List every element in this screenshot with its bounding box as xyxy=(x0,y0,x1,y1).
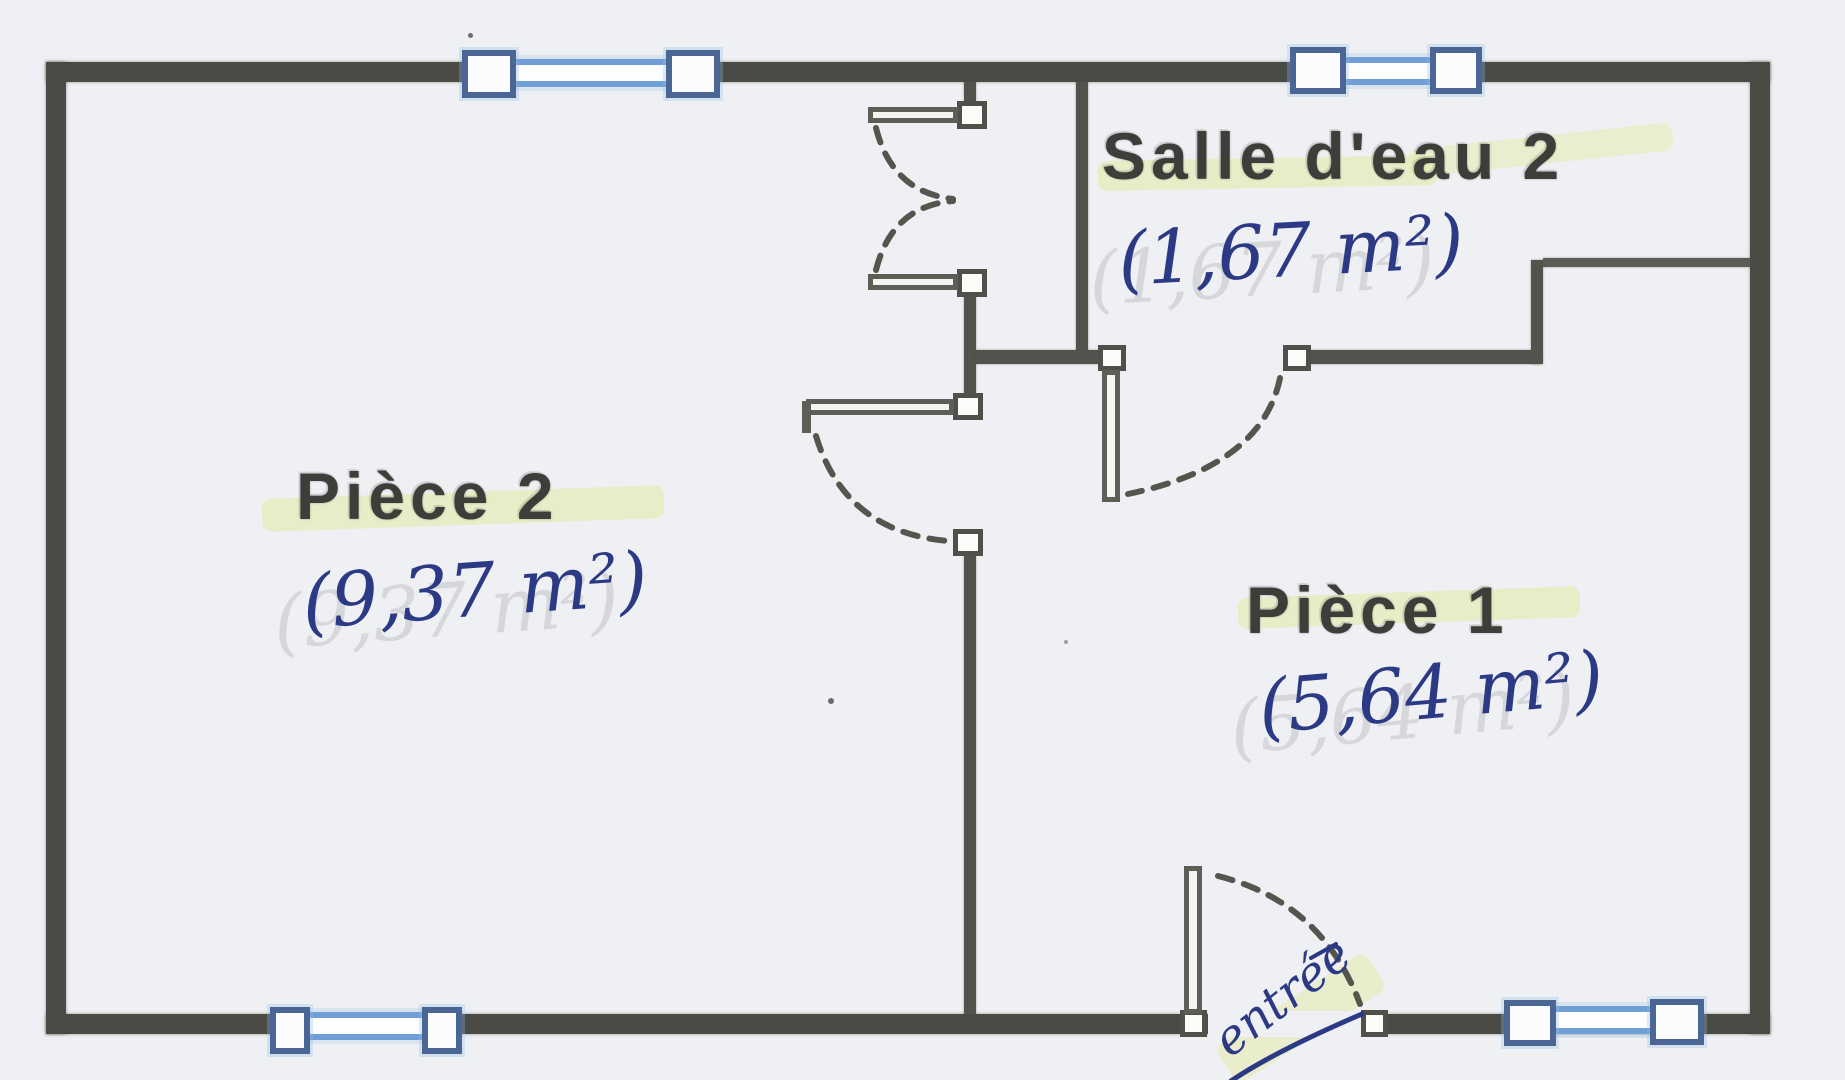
room-area-piece-1: (5,64 m²) xyxy=(1255,635,1607,751)
window-top-right-frame-a xyxy=(1290,47,1346,94)
closet-door-jamb-top xyxy=(957,101,987,129)
salle-d-eau-door-jamb-right xyxy=(1283,345,1311,371)
door-swing-overlay xyxy=(0,0,1845,1080)
closet-door-jamb-bottom xyxy=(957,269,987,297)
scan-speck xyxy=(1064,640,1068,644)
room-label-piece-2: Pièce 2 xyxy=(296,458,559,534)
scan-speck xyxy=(828,698,834,704)
closet-door-swing-arc-bottom xyxy=(876,201,953,270)
outer-wall-right xyxy=(1750,62,1770,1034)
floor-plan: Salle d'eau 2 Pièce 2 Pièce 1 (1,67 m²) … xyxy=(0,0,1845,1080)
salle-d-eau-wall-step xyxy=(1531,260,1543,364)
divider-wall-piece2-piece1 xyxy=(964,553,976,1014)
room-area-piece-2: (9,37 m²) xyxy=(299,536,650,646)
room-label-salle-d-eau-2: Salle d'eau 2 xyxy=(1102,118,1564,194)
salle-d-eau-door-swing-arc xyxy=(1128,378,1280,494)
closet-wall-bottom xyxy=(976,350,1104,364)
closet-door-swing-arc-top xyxy=(876,128,953,199)
doorway-jamb-bottom xyxy=(953,529,983,556)
doorway-jamb-top xyxy=(953,393,983,420)
outer-wall-top xyxy=(46,62,1770,82)
salle-d-eau-wall-left xyxy=(1076,82,1088,358)
closet-wall-mid xyxy=(964,294,976,396)
window-top-left-frame-a xyxy=(462,50,516,98)
closet-door-leaf-bottom xyxy=(868,274,958,290)
doorway-door-leaf-end-cap xyxy=(802,401,811,433)
salle-d-eau-door-jamb-left xyxy=(1098,345,1126,371)
window-bottom-right-frame-a xyxy=(1504,1000,1556,1046)
window-top-right-frame-b xyxy=(1430,47,1482,94)
room-label-piece-1: Pièce 1 xyxy=(1246,572,1509,648)
window-bottom-left xyxy=(308,1012,426,1040)
window-top-left-frame-b xyxy=(666,50,720,98)
room-area-salle-d-eau-2: (1,67 m²) xyxy=(1116,199,1466,303)
window-top-left xyxy=(514,59,670,87)
doorway-swing-arc xyxy=(816,436,948,541)
salle-d-eau-wall-right-thin xyxy=(1543,258,1750,267)
salle-d-eau-wall-bottom xyxy=(1309,350,1541,364)
window-bottom-left-frame-b xyxy=(422,1007,462,1054)
window-bottom-right-frame-b xyxy=(1650,999,1704,1045)
window-top-right xyxy=(1344,57,1434,85)
scan-speck xyxy=(468,33,473,38)
closet-door-leaf-top xyxy=(868,107,958,123)
outer-wall-left xyxy=(46,62,66,1034)
doorway-door-leaf xyxy=(806,399,954,415)
entry-door-leaf xyxy=(1184,866,1202,1014)
window-bottom-right xyxy=(1554,1006,1654,1034)
window-bottom-left-frame-a xyxy=(270,1007,310,1054)
entry-door-jamb-right xyxy=(1361,1010,1388,1037)
salle-d-eau-door-leaf xyxy=(1102,370,1120,502)
